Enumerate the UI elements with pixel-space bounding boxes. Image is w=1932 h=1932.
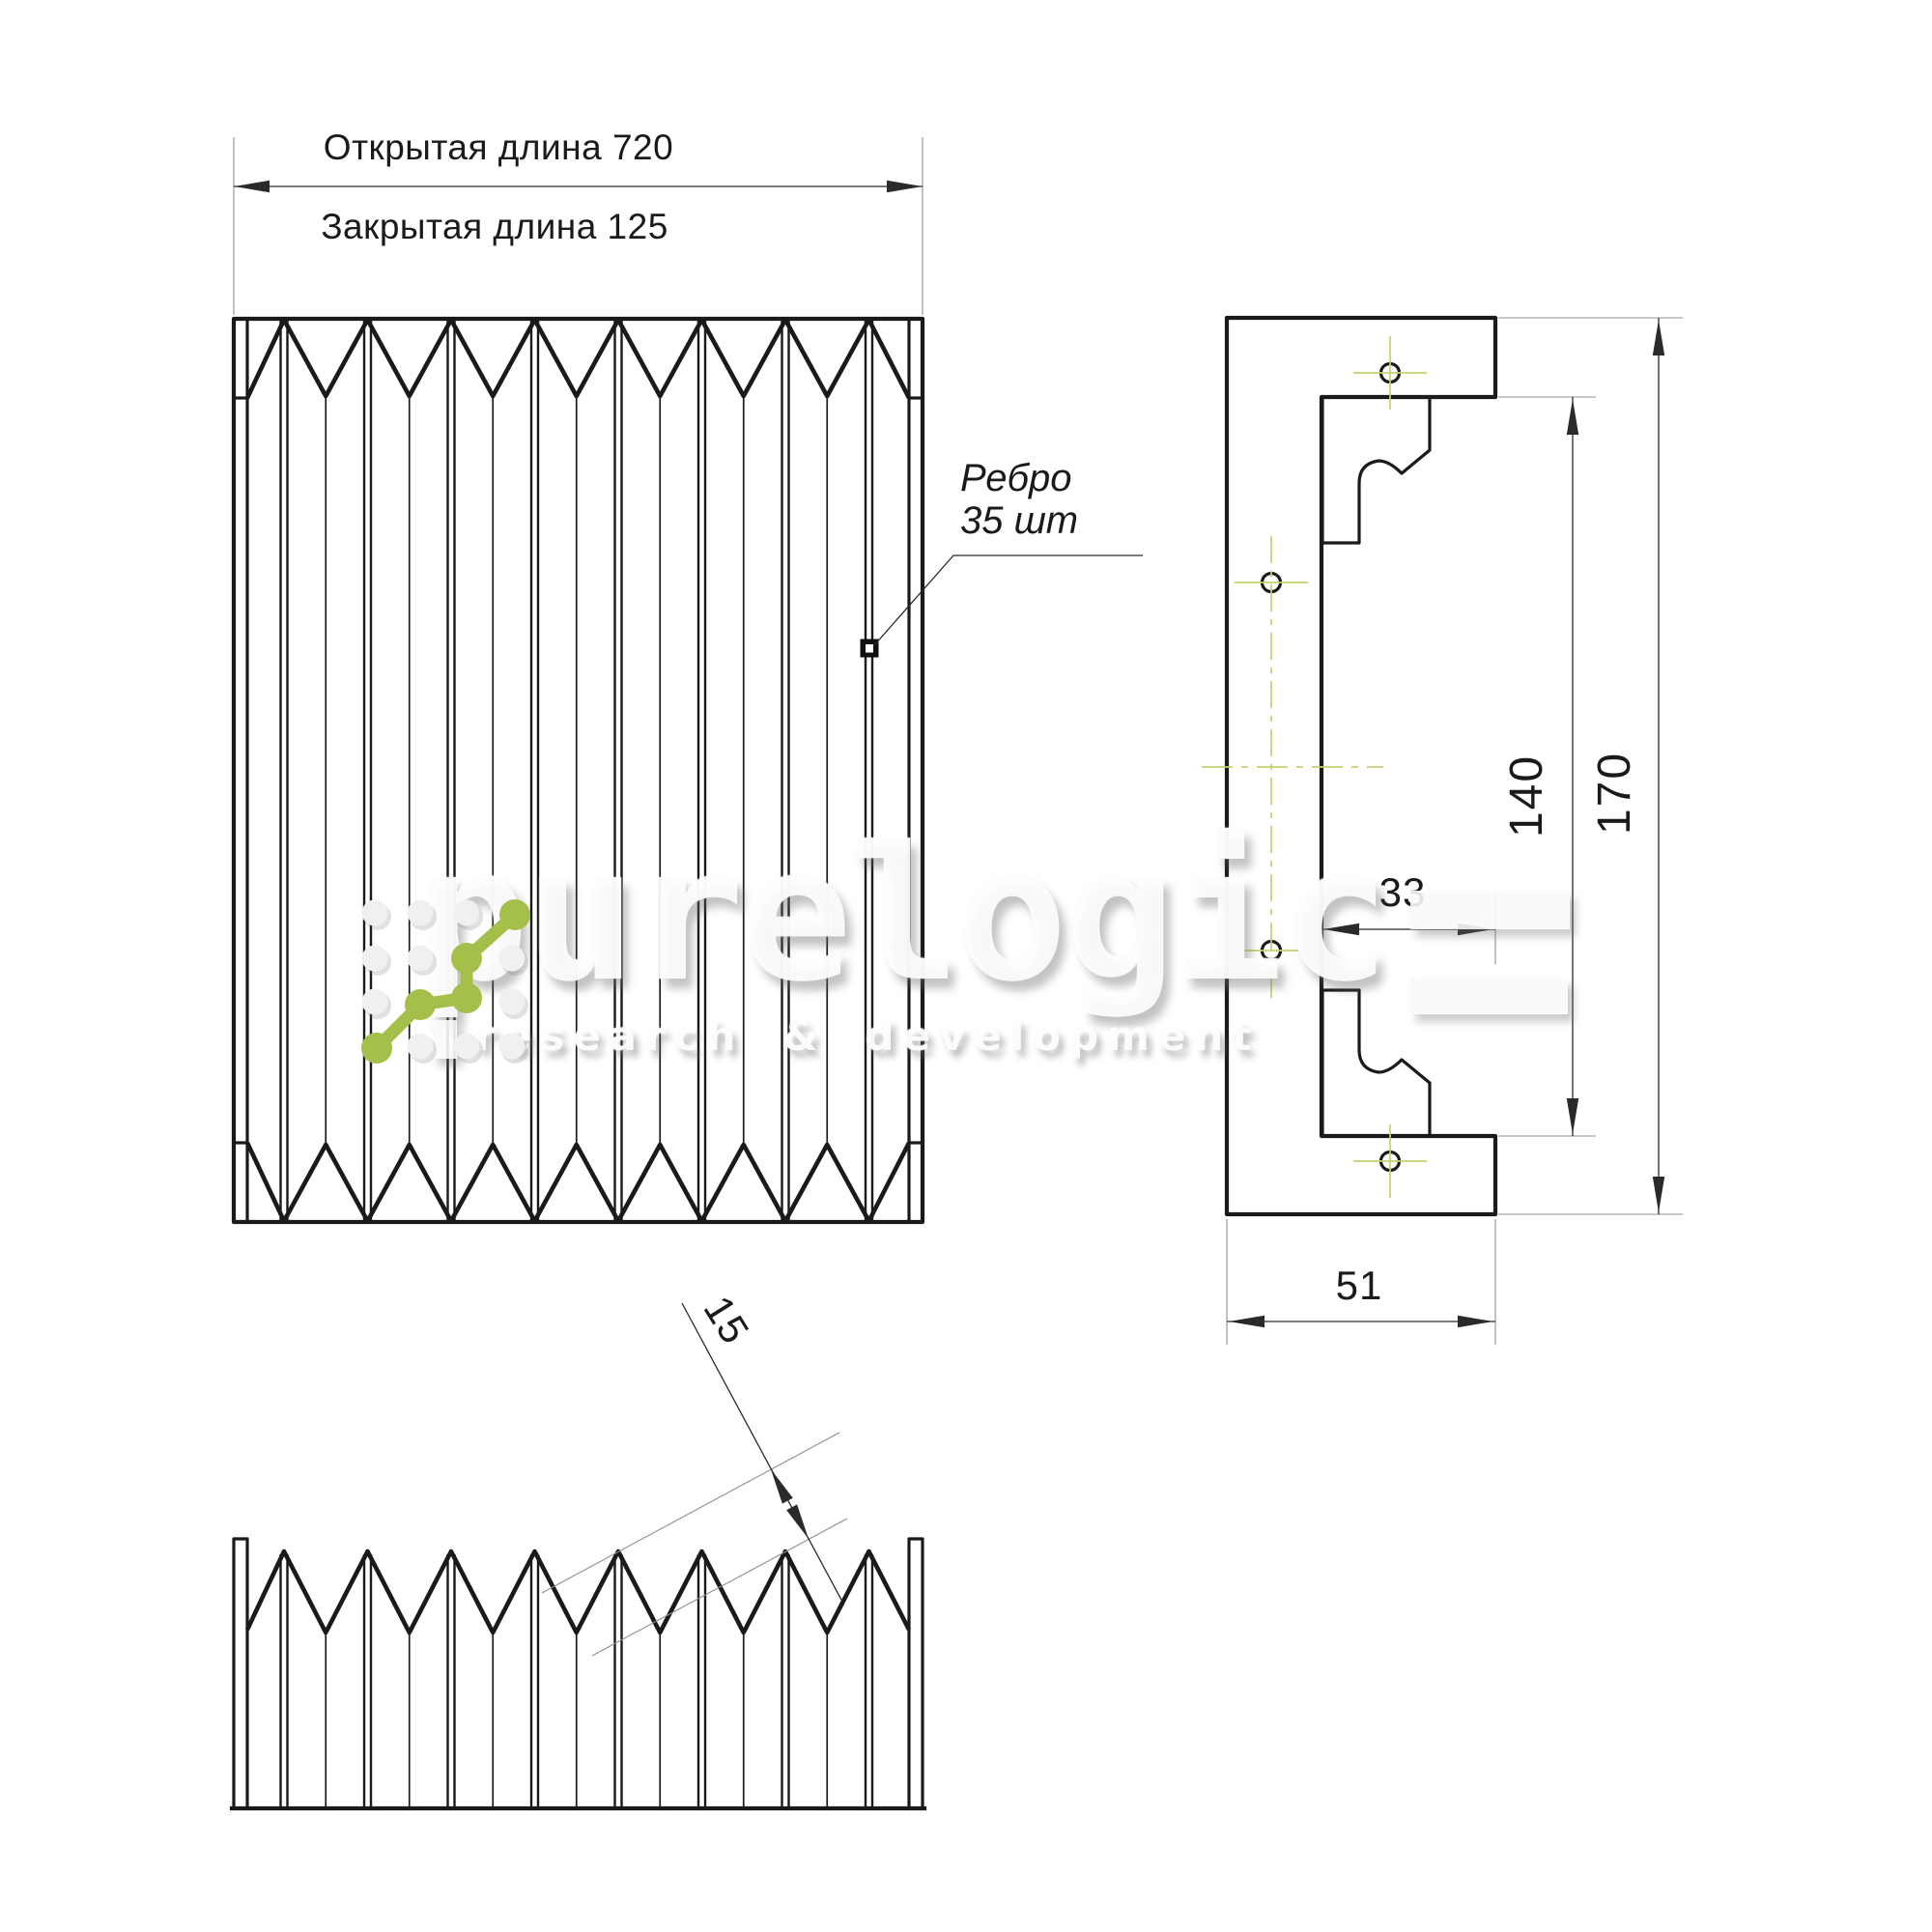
arrowhead [766,1466,793,1503]
bottom-fold-zigzag [247,1143,909,1221]
pleat-fold-lines [281,320,873,1220]
pleat-zigzag [247,1551,909,1633]
arrowhead [234,181,270,192]
arrowhead [1567,1098,1578,1134]
arrowhead [1323,923,1359,935]
arrowhead [1458,923,1493,935]
arrowhead [1567,399,1578,435]
arrowhead [1229,1316,1264,1327]
rib-leader-line [874,555,1143,645]
arrowhead [887,181,923,192]
rib-label-line1: Ребро [960,457,1071,499]
arrowhead [1653,1177,1664,1212]
rib-marker-center [866,644,873,653]
dim-label-15: 15 [695,1288,758,1351]
arrowhead [1458,1316,1493,1327]
side-view: 140 170 33 51 [1202,318,1683,1345]
dim-label-51: 51 [1336,1263,1383,1308]
dim-label-170: 170 [1589,752,1640,835]
top-fold-zigzag [247,320,909,398]
bellows-outline [234,319,923,1222]
rib-label-line2: 35 шт [960,499,1078,542]
open-length-label: Открытая длина 720 [324,128,673,167]
arrowhead [1653,320,1664,355]
front-view: Открытая длина 720 Закрытая длина 125 Ре… [234,128,1143,1222]
right-end-wall [909,1539,923,1808]
closed-length-label: Закрытая длина 125 [321,207,668,246]
left-end-wall [234,1539,247,1808]
drawing-canvas: Открытая длина 720 Закрытая длина 125 Ре… [0,0,1932,1932]
bottom-view: 15 [232,1288,924,1808]
pleat-fold-lines [281,1554,873,1806]
end-cap-outline [1227,318,1495,1214]
dim-label-33: 33 [1379,869,1427,915]
technical-drawing-page: Открытая длина 720 Закрытая длина 125 Ре… [0,0,1932,1932]
arrowhead [786,1504,813,1541]
bottom-notch-profile [1322,990,1430,1135]
top-notch-profile [1322,398,1430,543]
dim-label-140: 140 [1501,754,1552,838]
